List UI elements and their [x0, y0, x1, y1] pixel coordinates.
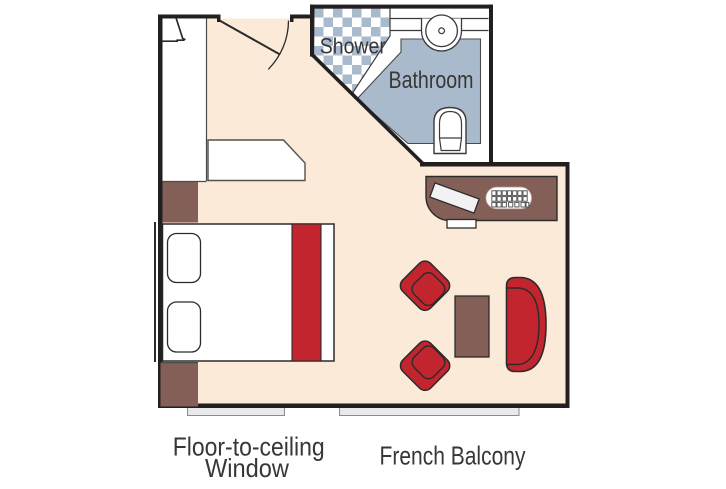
svg-text:Window: Window: [205, 453, 289, 483]
svg-text:Bathroom: Bathroom: [389, 67, 474, 94]
svg-text:Shower: Shower: [320, 34, 386, 59]
svg-text:French Balcony: French Balcony: [380, 441, 526, 471]
